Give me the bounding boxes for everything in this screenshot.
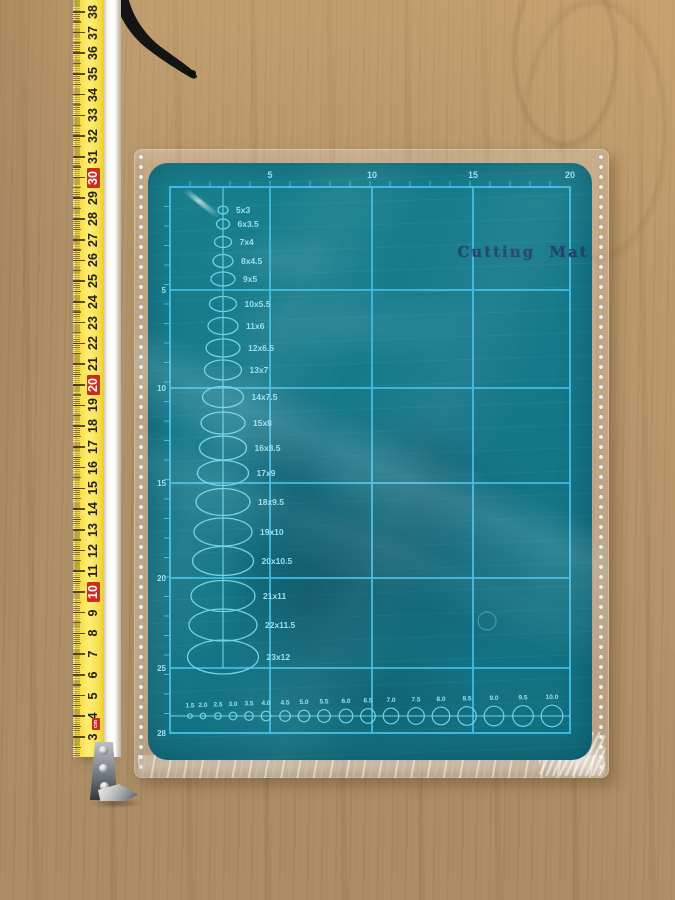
tape-half-cm-tick [73, 747, 81, 748]
tape-half-cm-tick [73, 104, 81, 105]
circle-size-label: 2.0 [198, 702, 207, 709]
circle-size-label: 6.0 [341, 698, 350, 705]
tape-cm-tick [73, 591, 85, 593]
tape-half-cm-tick [73, 539, 81, 540]
tape-cm-tick [73, 488, 85, 490]
tape-half-cm-tick [73, 42, 81, 43]
tape-half-cm-tick [73, 560, 81, 561]
ellipse-size-label: 18x9.5 [258, 497, 284, 507]
ellipse-size-label: 17x9 [257, 468, 276, 478]
circle-size-label: 7.5 [411, 697, 420, 704]
tape-half-cm-tick [73, 457, 81, 458]
tape-half-cm-tick [73, 166, 81, 167]
tape-half-cm-tick [73, 353, 81, 354]
tape-cm-tick [73, 736, 85, 738]
grid-left-scale-label: 20 [157, 574, 166, 583]
tape-half-cm-tick [73, 394, 81, 395]
tape-half-cm-tick [73, 249, 81, 250]
ellipse-size-label: 7x4 [240, 237, 254, 247]
circle-size-label: 6.5 [363, 698, 372, 705]
tape-cm-tick [73, 550, 85, 552]
mat-title: Cutting Mat [448, 243, 598, 261]
circle-size-label: 2.5 [213, 702, 222, 709]
grid-top-scale-label: 5 [267, 170, 272, 180]
cutting-mat: 5101520510152025285x36x3.57x48x4.59x510x… [148, 163, 592, 760]
tape-cm-tick [73, 612, 85, 614]
tape-half-cm-tick [73, 208, 81, 209]
grid-left-scale-label: 5 [162, 286, 167, 295]
tape-half-cm-tick [73, 498, 81, 499]
tape-half-cm-tick [73, 125, 81, 126]
tape-half-cm-tick [73, 581, 81, 582]
tape-cm-tick [73, 446, 85, 448]
tape-cm-tick [73, 343, 85, 345]
tape-half-cm-tick [73, 63, 81, 64]
tape-cm-tick [73, 260, 85, 262]
tape-half-cm-tick [73, 664, 81, 665]
tape-cm-tick [73, 570, 85, 572]
tape-cm-tick [73, 135, 85, 137]
plastic-perforated-edge-left [135, 152, 148, 772]
tape-cm-tick [73, 197, 85, 199]
circle-size-label: 9.0 [489, 695, 498, 702]
ellipse-size-label: 8x4.5 [241, 256, 263, 266]
ellipse-size-label: 19x10 [260, 527, 284, 537]
circle-size-label: 3.0 [228, 701, 237, 708]
tape-unit-label: cm [92, 718, 100, 730]
ellipse-size-label: 21x11 [263, 591, 286, 601]
tape-cm-tick [73, 363, 85, 365]
ellipse-size-label: 5x3 [236, 205, 250, 215]
tape-cm-tick [73, 94, 85, 96]
tape-cm-tick [73, 11, 85, 13]
tape-half-cm-tick [73, 84, 81, 85]
tape-number: 38 [86, 0, 100, 27]
ellipse-size-label: 12x6.5 [248, 343, 274, 353]
tape-half-cm-tick [73, 705, 81, 706]
tape-half-cm-tick [73, 684, 81, 685]
tape-half-cm-tick [73, 374, 81, 375]
tape-half-cm-tick [73, 436, 81, 437]
tape-cm-tick [73, 384, 85, 386]
tape-half-cm-tick [73, 726, 81, 727]
circle-size-label: 7.0 [386, 697, 395, 704]
tape-cm-tick [73, 32, 85, 34]
tape-cm-tick [73, 715, 85, 717]
grid-top-scale-label: 15 [468, 170, 478, 180]
tape-end-hook [88, 742, 144, 806]
ellipse-size-label: 20x10.5 [262, 556, 293, 566]
tape-half-cm-tick [73, 291, 81, 292]
tape-cm-tick [73, 508, 85, 510]
tape-cm-tick [73, 674, 85, 676]
tape-half-cm-tick [73, 519, 81, 520]
tape-half-cm-tick [73, 21, 81, 22]
tape-half-cm-tick [73, 187, 81, 188]
circle-size-label: 3.5 [244, 701, 253, 708]
tape-half-cm-tick [73, 146, 81, 147]
photo-stage: 5101520510152025285x36x3.57x48x4.59x510x… [0, 0, 675, 900]
tape-cm-tick [73, 177, 85, 179]
circle-size-label: 1.5 [185, 703, 194, 710]
tape-measure: 3456789101112131415161718192021222324252… [73, 0, 122, 803]
tape-cm-tick [73, 301, 85, 303]
ellipse-size-label: 23x12 [267, 652, 291, 662]
ellipse-size-label: 6x3.5 [238, 219, 260, 229]
tape-cm-tick [73, 156, 85, 158]
circle-size-label: 5.0 [299, 699, 308, 706]
tape-half-cm-tick [73, 602, 81, 603]
tape-cm-tick [73, 322, 85, 324]
circle-size-label: 4.5 [280, 700, 289, 707]
tape-half-cm-tick [73, 622, 81, 623]
tape-cm-tick [73, 425, 85, 427]
circle-size-label: 9.5 [518, 695, 527, 702]
circle-size-label: 8.5 [462, 696, 471, 703]
grid-top-scale-label: 20 [565, 170, 575, 180]
tape-half-cm-tick [73, 229, 81, 230]
tape-cm-tick [73, 115, 85, 117]
tape-cm-tick [73, 653, 85, 655]
hook-rivet [99, 746, 108, 755]
ellipse-size-label: 16x8.5 [255, 443, 281, 453]
tape-cm-tick [73, 218, 85, 220]
grid-left-scale-label: 25 [157, 664, 166, 673]
tape-white-edge [104, 0, 121, 757]
tape-half-cm-tick [73, 332, 81, 333]
ellipse-size-label: 11x6 [246, 321, 265, 331]
tape-half-cm-tick [73, 643, 81, 644]
ellipse-size-label: 13x7 [250, 365, 269, 375]
tape-cm-tick [73, 695, 85, 697]
tape-cm-tick [73, 467, 85, 469]
tape-cm-tick [73, 52, 85, 54]
tape-cm-tick [73, 529, 85, 531]
hook-rivet [99, 764, 108, 773]
tape-cm-tick [73, 280, 85, 282]
tape-cm-tick [73, 73, 85, 75]
grid-top-scale-label: 10 [367, 170, 377, 180]
ellipse-size-label: 14x7.5 [252, 392, 278, 402]
tape-half-cm-tick [73, 311, 81, 312]
grid-left-scale-label: 28 [157, 729, 166, 738]
plastic-water-mark [478, 612, 496, 630]
tape-half-cm-tick [73, 415, 81, 416]
ellipse-size-label: 22x11.5 [265, 620, 296, 630]
ellipse-size-label: 9x5 [243, 274, 257, 284]
tape-half-cm-tick [73, 270, 81, 271]
circle-size-label: 8.0 [436, 696, 445, 703]
tape-cm-tick [73, 239, 85, 241]
tape-half-cm-tick [73, 477, 81, 478]
grid-left-scale-label: 10 [157, 384, 166, 393]
tape-cm-tick [73, 633, 85, 635]
circle-size-label: 4.0 [261, 700, 270, 707]
ellipse-size-label: 10x5.5 [245, 299, 271, 309]
ellipse-size-label: 15x8 [253, 418, 272, 428]
circle-size-label: 10.0 [546, 694, 559, 701]
circle-size-label: 5.5 [319, 699, 328, 706]
grid-left-scale-label: 15 [157, 479, 166, 488]
tape-cm-tick [73, 405, 85, 407]
